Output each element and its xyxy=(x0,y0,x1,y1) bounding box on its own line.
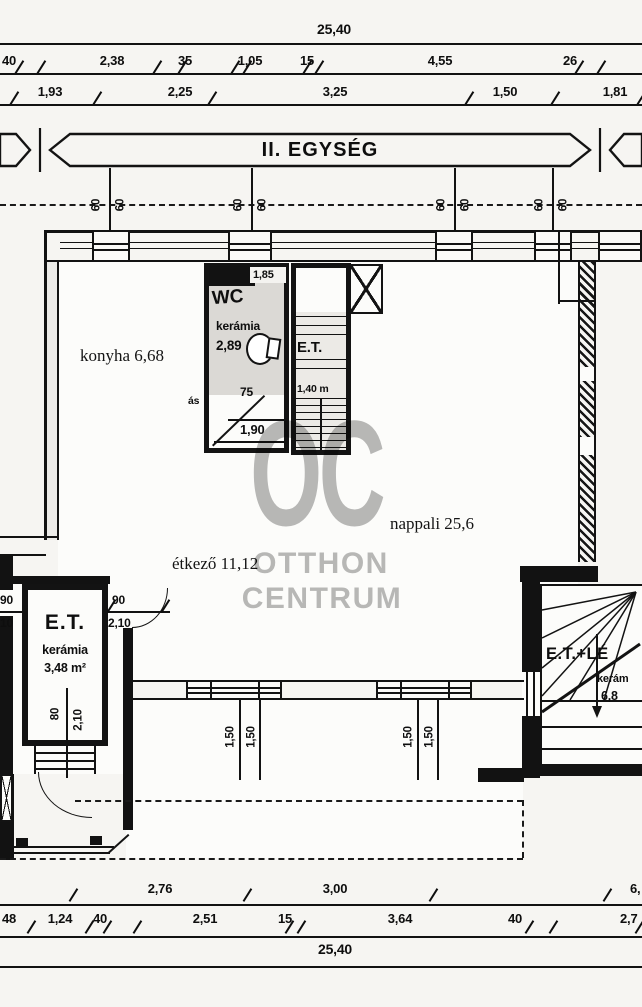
dim-line xyxy=(0,104,642,106)
stair-divider xyxy=(320,398,322,450)
tick xyxy=(525,920,535,934)
tick xyxy=(10,91,20,105)
dim-label: 48 xyxy=(2,912,16,925)
stair-tread xyxy=(296,316,346,317)
dim-label: 75 xyxy=(240,386,253,398)
dim-line xyxy=(259,700,261,780)
wall-hatched xyxy=(578,262,596,562)
dim-label: 6, xyxy=(630,882,640,895)
tick xyxy=(597,60,607,74)
window-sill xyxy=(526,672,528,716)
dim-line xyxy=(0,611,22,613)
window-sill xyxy=(60,242,598,243)
tick xyxy=(429,888,439,902)
dim-label: 26 xyxy=(563,54,577,67)
dim-module: 60 xyxy=(91,199,103,211)
wall-gap xyxy=(580,437,594,455)
tick xyxy=(69,888,79,902)
dim-label: 90 xyxy=(0,594,13,606)
dim-label: 40 xyxy=(2,54,16,67)
wall xyxy=(0,536,58,538)
room-label-et-right: E.T.+LÉ xyxy=(546,646,609,663)
dim-label: 2,7 xyxy=(620,912,637,925)
dim-bottom-total: 25,40 xyxy=(318,942,352,956)
axis-line xyxy=(251,168,253,232)
door-stop xyxy=(90,836,102,845)
wall xyxy=(0,556,13,774)
room-label-konyha: konyha 6,68 xyxy=(80,346,164,366)
dim-label: 2,25 xyxy=(168,85,193,98)
dim-label: 1,81 xyxy=(603,85,628,98)
room-label-et-mid: E.T. xyxy=(297,340,322,355)
dim-label: 1,40 m xyxy=(297,384,329,395)
wall xyxy=(558,230,560,304)
dim-line xyxy=(0,904,642,906)
wall xyxy=(558,300,596,302)
axis-line xyxy=(552,168,554,232)
dim-module: 60 xyxy=(534,199,546,211)
dim-label: 3,64 xyxy=(388,912,413,925)
tick xyxy=(208,91,218,105)
window-jamb xyxy=(210,681,212,699)
tick xyxy=(37,60,47,74)
door-stop xyxy=(16,838,28,847)
room-area: 6,8 xyxy=(601,690,618,703)
wall-pier xyxy=(92,230,130,262)
dim-label: 10 xyxy=(0,617,13,629)
room-label-etkezo: étkező 11,12 xyxy=(172,554,258,574)
step-edge xyxy=(94,744,96,774)
dim-label: 40 xyxy=(508,912,522,925)
room-label-wc: WC xyxy=(211,287,244,308)
tick xyxy=(465,91,475,105)
dim-label: 3,00 xyxy=(323,882,348,895)
dim-line xyxy=(239,700,241,780)
window-jamb xyxy=(258,681,260,699)
window xyxy=(376,680,472,700)
terrace-fill xyxy=(126,700,523,858)
dim-label: 2,76 xyxy=(148,882,173,895)
room-material: kerám xyxy=(597,674,628,685)
dim-module: 60 xyxy=(233,199,245,211)
wall xyxy=(57,262,59,540)
step xyxy=(34,744,96,746)
door-arc xyxy=(38,772,92,818)
window-sill xyxy=(533,672,535,716)
stair-tread xyxy=(296,359,346,360)
tick xyxy=(133,920,143,934)
dim-module: 60 xyxy=(257,199,269,211)
dim-label: 1,93 xyxy=(38,85,63,98)
stair-tread xyxy=(296,325,346,326)
dim-label: 90 xyxy=(112,594,125,606)
wall-pier xyxy=(228,230,272,262)
axis-line xyxy=(454,168,456,232)
dim-line xyxy=(437,700,439,780)
tick xyxy=(85,920,95,934)
wall xyxy=(478,768,524,782)
stair-tread xyxy=(296,334,346,335)
shaft-window xyxy=(349,264,383,314)
dim-line xyxy=(0,966,642,968)
dim-label: 2,38 xyxy=(100,54,125,67)
step xyxy=(34,752,96,754)
tick xyxy=(549,920,559,934)
terrace-outline xyxy=(75,800,523,802)
dim-label: 1,50 xyxy=(225,726,237,748)
room-material: kerámia xyxy=(216,320,260,332)
wall xyxy=(520,566,598,582)
wall-pier xyxy=(435,230,473,262)
tick xyxy=(153,60,163,74)
tick xyxy=(243,888,253,902)
stair-tread xyxy=(542,700,642,702)
floorplan: 25,40 40 2,38 35 1,05 15 4,55 26 1,93 2,… xyxy=(0,0,642,1007)
axis-line xyxy=(109,168,111,232)
dim-label: 2,51 xyxy=(193,912,218,925)
window xyxy=(186,680,282,700)
dim-label: 1,50 xyxy=(424,726,436,748)
tick xyxy=(315,60,325,74)
unit-band-title: II. EGYSÉG xyxy=(262,140,379,160)
porch-slab xyxy=(10,852,110,854)
dim-label: 1,24 xyxy=(48,912,73,925)
dim-label: 40 xyxy=(93,912,107,925)
dim-label: 1,50 xyxy=(493,85,518,98)
step-edge xyxy=(34,744,36,774)
wall xyxy=(13,576,110,584)
wall-pier xyxy=(598,230,642,262)
dim-line xyxy=(417,700,419,780)
tick xyxy=(27,920,37,934)
dim-label: 1,85 xyxy=(253,270,274,281)
dim-label: 3,25 xyxy=(323,85,348,98)
stair-tread xyxy=(542,726,642,728)
wc-fixture xyxy=(209,266,255,286)
tick xyxy=(15,60,25,74)
dim-label: 2,10 xyxy=(73,709,85,731)
room-area: 3,48 m² xyxy=(44,662,86,675)
tick xyxy=(297,920,307,934)
dim-module: 60 xyxy=(436,199,448,211)
dim-label: 1,50 xyxy=(403,726,415,748)
tick xyxy=(603,888,613,902)
dim-module: 60 xyxy=(115,199,127,211)
terrace-outline xyxy=(522,800,524,858)
shaft-landing xyxy=(296,268,346,312)
dim-line xyxy=(228,419,284,421)
window-sill xyxy=(60,248,598,249)
step xyxy=(34,760,96,762)
dim-line xyxy=(0,73,642,75)
step xyxy=(34,768,96,770)
dim-label: 80 xyxy=(50,708,62,720)
room-label-et-left: E.T. xyxy=(45,612,85,633)
wall-gap xyxy=(580,367,594,381)
tick xyxy=(637,91,642,105)
dim-line xyxy=(0,43,642,45)
dim-label: 1,90 xyxy=(240,423,265,436)
window-jamb xyxy=(448,681,450,699)
dim-line xyxy=(66,688,68,778)
wall-pier xyxy=(534,230,572,262)
wall-gap xyxy=(522,672,540,716)
tick xyxy=(93,91,103,105)
stair-tread xyxy=(542,748,642,750)
room-area: 2,89 xyxy=(216,339,241,353)
room-label-partial: ás xyxy=(188,396,199,407)
tick xyxy=(551,91,561,105)
room-material: kerámia xyxy=(42,644,88,657)
dim-module: 60 xyxy=(460,199,472,211)
dim-line xyxy=(214,441,284,443)
room-label-nappali: nappali 25,6 xyxy=(390,514,474,534)
dim-line xyxy=(0,936,642,938)
dim-top-total: 25,40 xyxy=(317,22,351,36)
window-jamb xyxy=(400,681,402,699)
dim-label: 4,55 xyxy=(428,54,453,67)
dim-module: 60 xyxy=(558,199,570,211)
terrace-outline xyxy=(0,858,523,860)
stair-tread xyxy=(296,368,346,369)
dim-label: 1,50 xyxy=(246,726,258,748)
